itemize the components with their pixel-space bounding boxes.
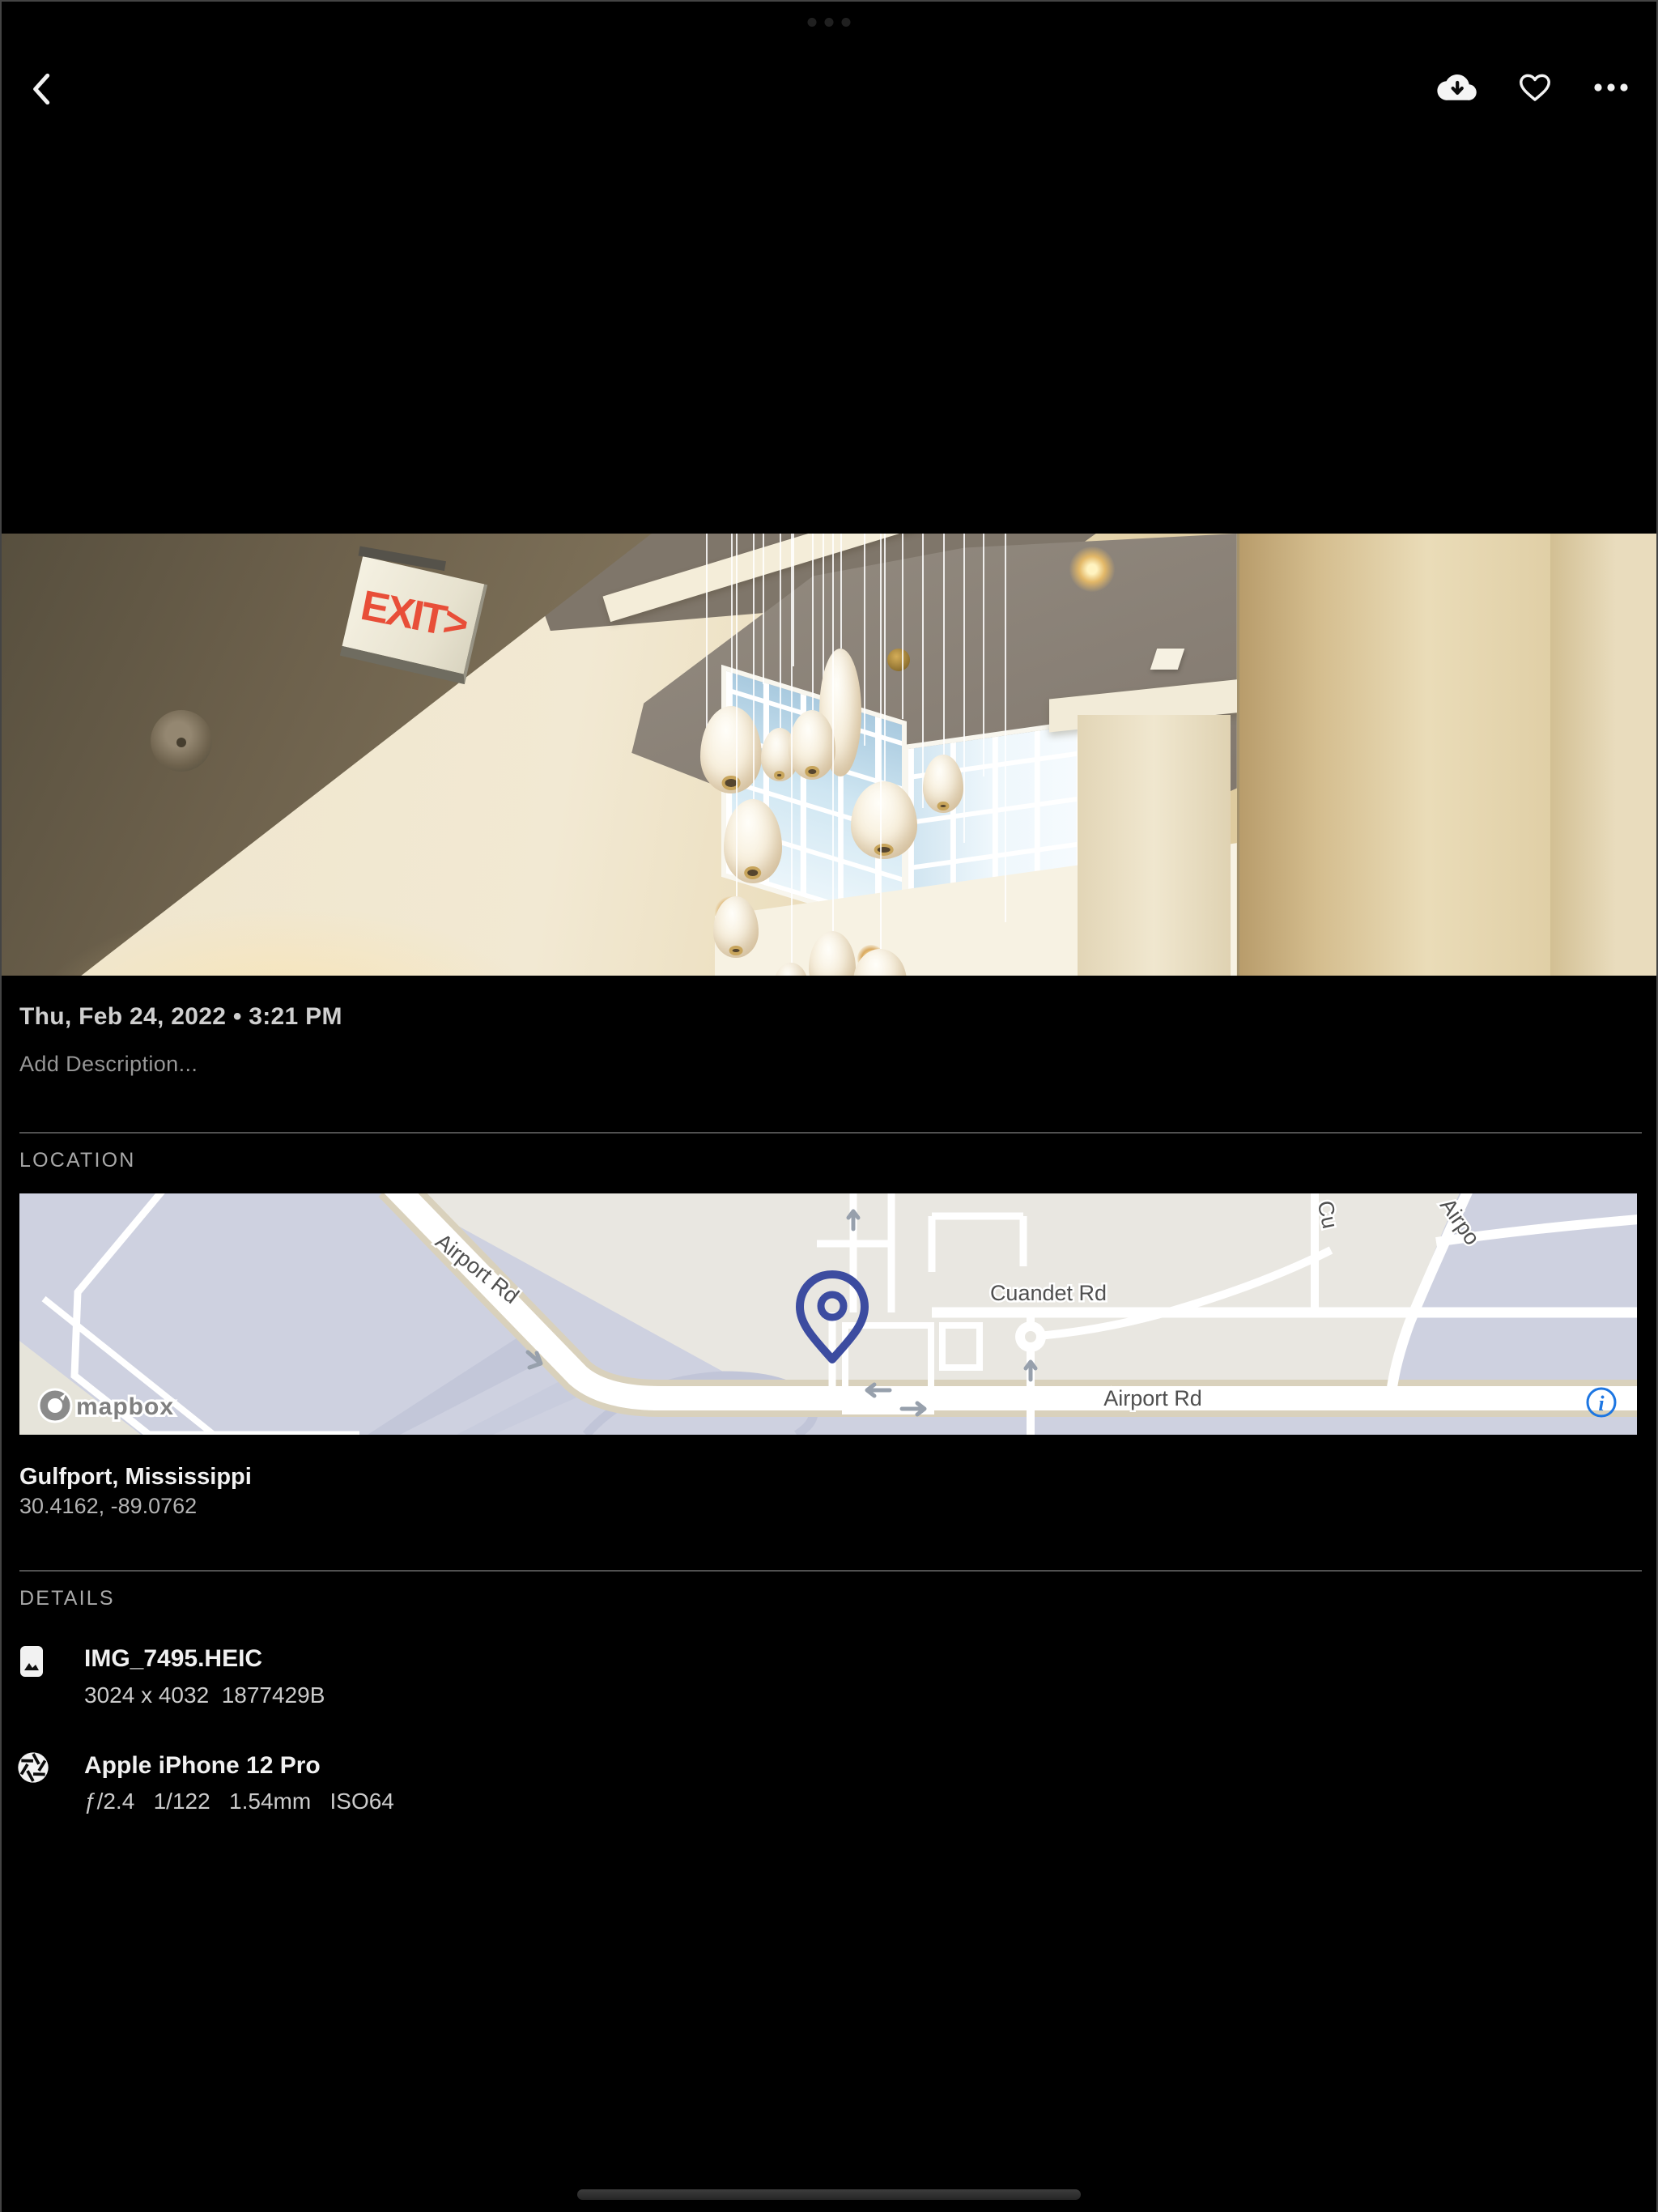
- lamp-cable: [753, 534, 755, 799]
- home-indicator[interactable]: [577, 2189, 1081, 2200]
- location-coordinates: 30.4162, -89.0762: [19, 1494, 197, 1519]
- pendant-lamp: [724, 799, 782, 883]
- favorite-button[interactable]: [1512, 65, 1558, 110]
- back-button[interactable]: [19, 66, 65, 112]
- details-section-label: DETAILS: [19, 1587, 115, 1610]
- lamp-cable: [864, 534, 865, 746]
- lamp-cable: [922, 534, 924, 808]
- pendant-lamp: [923, 755, 963, 813]
- lamp-cable: [943, 534, 945, 755]
- location-section-label: LOCATION: [19, 1149, 136, 1172]
- location-place: Gulfport, Mississippi: [19, 1464, 252, 1491]
- lamp-cable: [880, 534, 882, 949]
- lamp-cable: [780, 534, 781, 728]
- description-input[interactable]: Add Description...: [19, 1052, 198, 1077]
- heart-icon: [1517, 70, 1553, 104]
- divider: [19, 1132, 1642, 1134]
- file-meta: 3024 x 4032 1877429B: [84, 1682, 325, 1708]
- lamp-cable: [1005, 534, 1006, 922]
- map-canvas: Airport Rd Cuandet Rd Airport Rd Cu Airp…: [19, 1193, 1637, 1435]
- lamp-cable: [793, 534, 794, 666]
- svg-text:i: i: [1598, 1392, 1605, 1415]
- camera-exif: ƒ/2.4 1/122 1.54mm ISO64: [84, 1789, 394, 1814]
- aperture-icon: [16, 1750, 50, 1784]
- cloud-download-icon: [1435, 70, 1477, 104]
- lamp-cable: [983, 534, 984, 776]
- lamp-opening: [874, 844, 894, 856]
- lamp-opening: [937, 802, 950, 811]
- camera-row: [16, 1750, 50, 1789]
- lamp-cable: [791, 534, 793, 963]
- pendant-lamp: [851, 781, 917, 859]
- lamp-cable: [840, 534, 842, 649]
- pendant-lamp: [713, 896, 759, 958]
- location-map[interactable]: Airport Rd Cuandet Rd Airport Rd Cu Airp…: [19, 1193, 1637, 1435]
- file-name: IMG_7495.HEIC: [84, 1645, 262, 1673]
- file-row: [19, 1645, 44, 1682]
- map-label-cuandet-rd: Cuandet Rd: [990, 1281, 1107, 1305]
- lamp-cable: [884, 534, 886, 781]
- pendant-lamp: [809, 931, 856, 976]
- camera-name: Apple iPhone 12 Pro: [84, 1752, 321, 1780]
- pendant-lamp: [853, 949, 907, 976]
- pendant-lamp: [774, 963, 808, 976]
- lamp-opening: [806, 766, 819, 777]
- lamp-opening: [729, 946, 743, 955]
- dot-icon: [842, 18, 851, 27]
- exit-sign-text: EXIT>: [356, 581, 470, 649]
- lamp-cable: [902, 534, 903, 719]
- photo-preview[interactable]: EXIT>: [2, 534, 1658, 976]
- dot-icon: [825, 18, 834, 27]
- map-label-airport-rd-horizontal: Airport Rd: [1103, 1386, 1202, 1410]
- lamp-cable: [832, 534, 834, 931]
- chevron-left-icon: [26, 70, 58, 108]
- svg-text:mapbox: mapbox: [76, 1393, 174, 1420]
- image-file-icon: [19, 1645, 44, 1678]
- multitask-indicator[interactable]: [808, 18, 851, 27]
- photo-date-time[interactable]: Thu, Feb 24, 2022 • 3:21 PM: [19, 1003, 342, 1031]
- more-button[interactable]: [1588, 65, 1634, 110]
- divider: [19, 1570, 1642, 1572]
- photo-detail-screen: EXIT> Thu, Feb 24, 2022 • 3:21 PM Add De…: [0, 0, 1658, 2212]
- lamp-cable: [731, 534, 733, 706]
- lamp-opening: [744, 866, 762, 880]
- download-button[interactable]: [1434, 65, 1479, 110]
- dot-icon: [808, 18, 817, 27]
- lamp-cable: [812, 534, 814, 710]
- mapbox-logo[interactable]: mapbox: [39, 1389, 174, 1422]
- lamp-cable: [736, 534, 738, 896]
- lamp-opening: [774, 771, 785, 780]
- ellipsis-icon: [1592, 82, 1630, 93]
- lamp-cable: [963, 534, 965, 843]
- lamp-cable: [763, 534, 764, 684]
